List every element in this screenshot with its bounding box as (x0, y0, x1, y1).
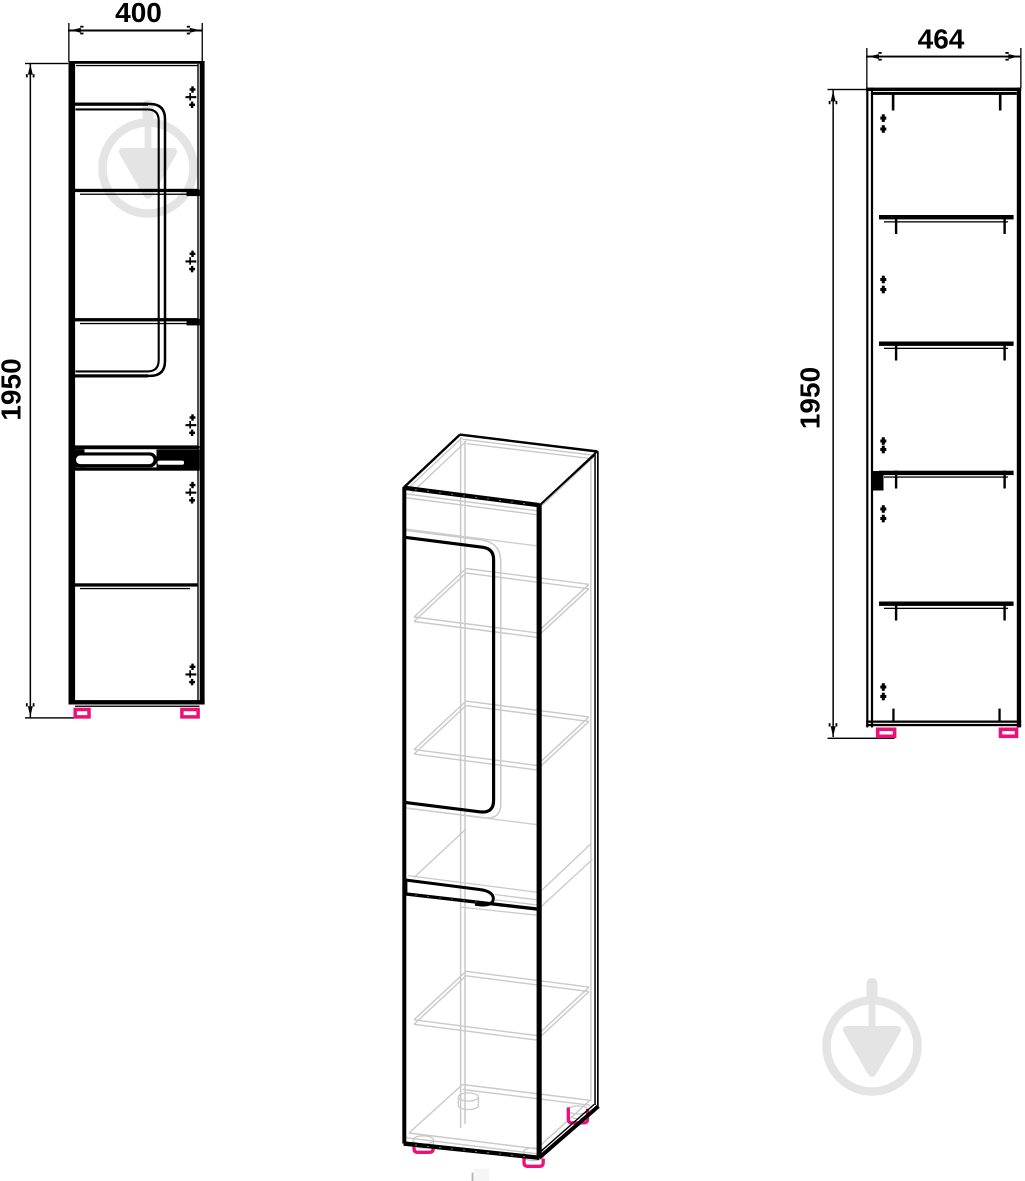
svg-text:1950: 1950 (0, 358, 27, 420)
svg-text:1950: 1950 (795, 367, 826, 429)
svg-text:400: 400 (115, 0, 162, 28)
svg-text:464: 464 (918, 24, 965, 55)
